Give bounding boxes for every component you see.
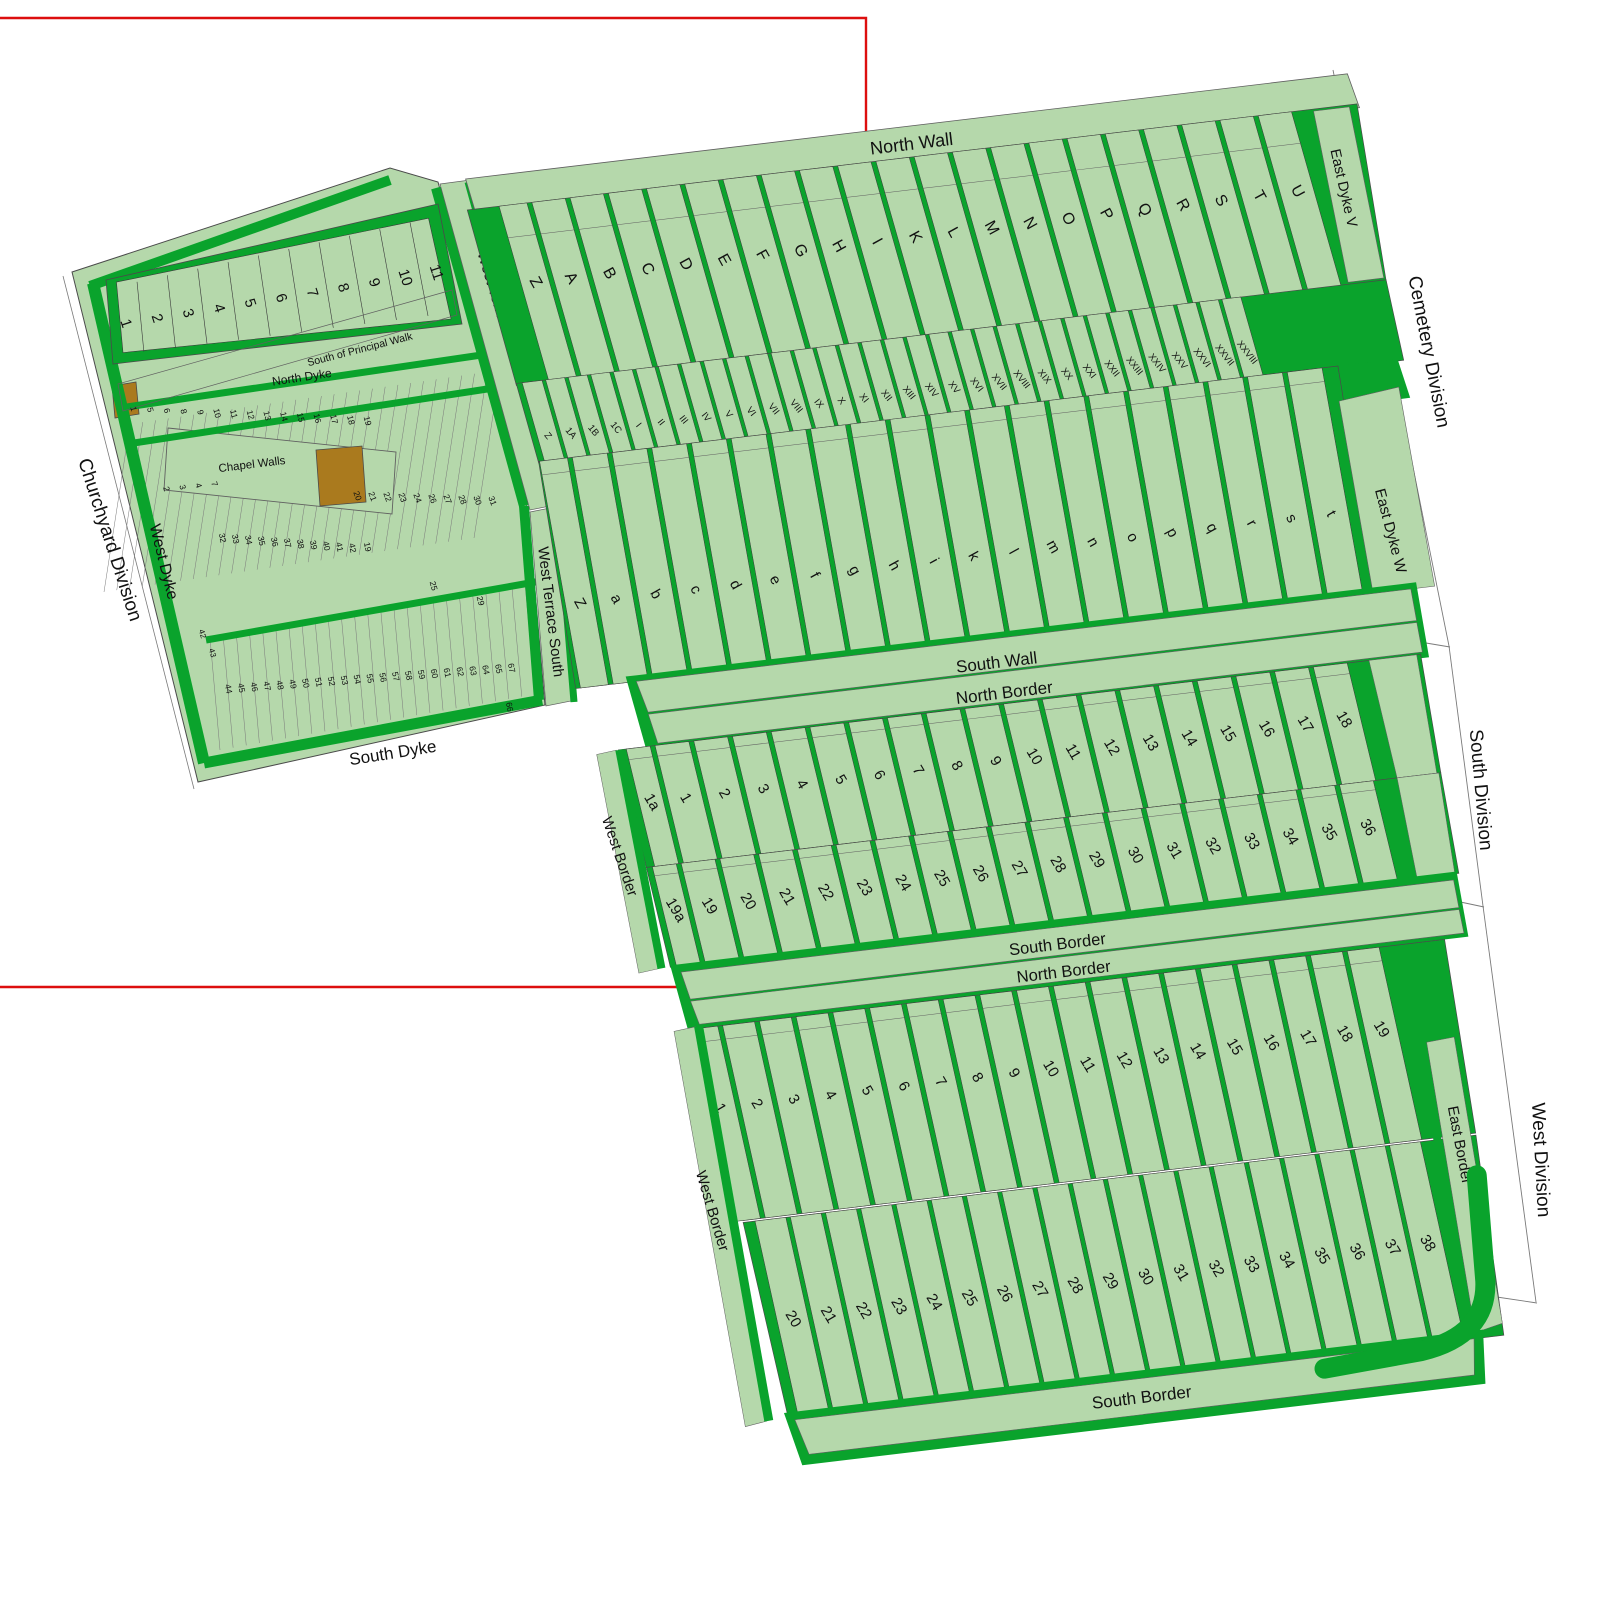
south-division-label: South Division — [1465, 729, 1497, 852]
cemetery-frame: North WallZABCDEFGHIKLMNOPQRSTUEast Dyke… — [464, 71, 1529, 1487]
cemetery-map-page: Chapel Walls1234567891011South of Princi… — [0, 0, 1600, 1600]
cemetery-division-label: Cemetery Division — [1403, 274, 1453, 429]
cemetery-map: Chapel Walls1234567891011South of Princi… — [0, 0, 1600, 1600]
west-division-label: West Division — [1527, 1102, 1554, 1218]
